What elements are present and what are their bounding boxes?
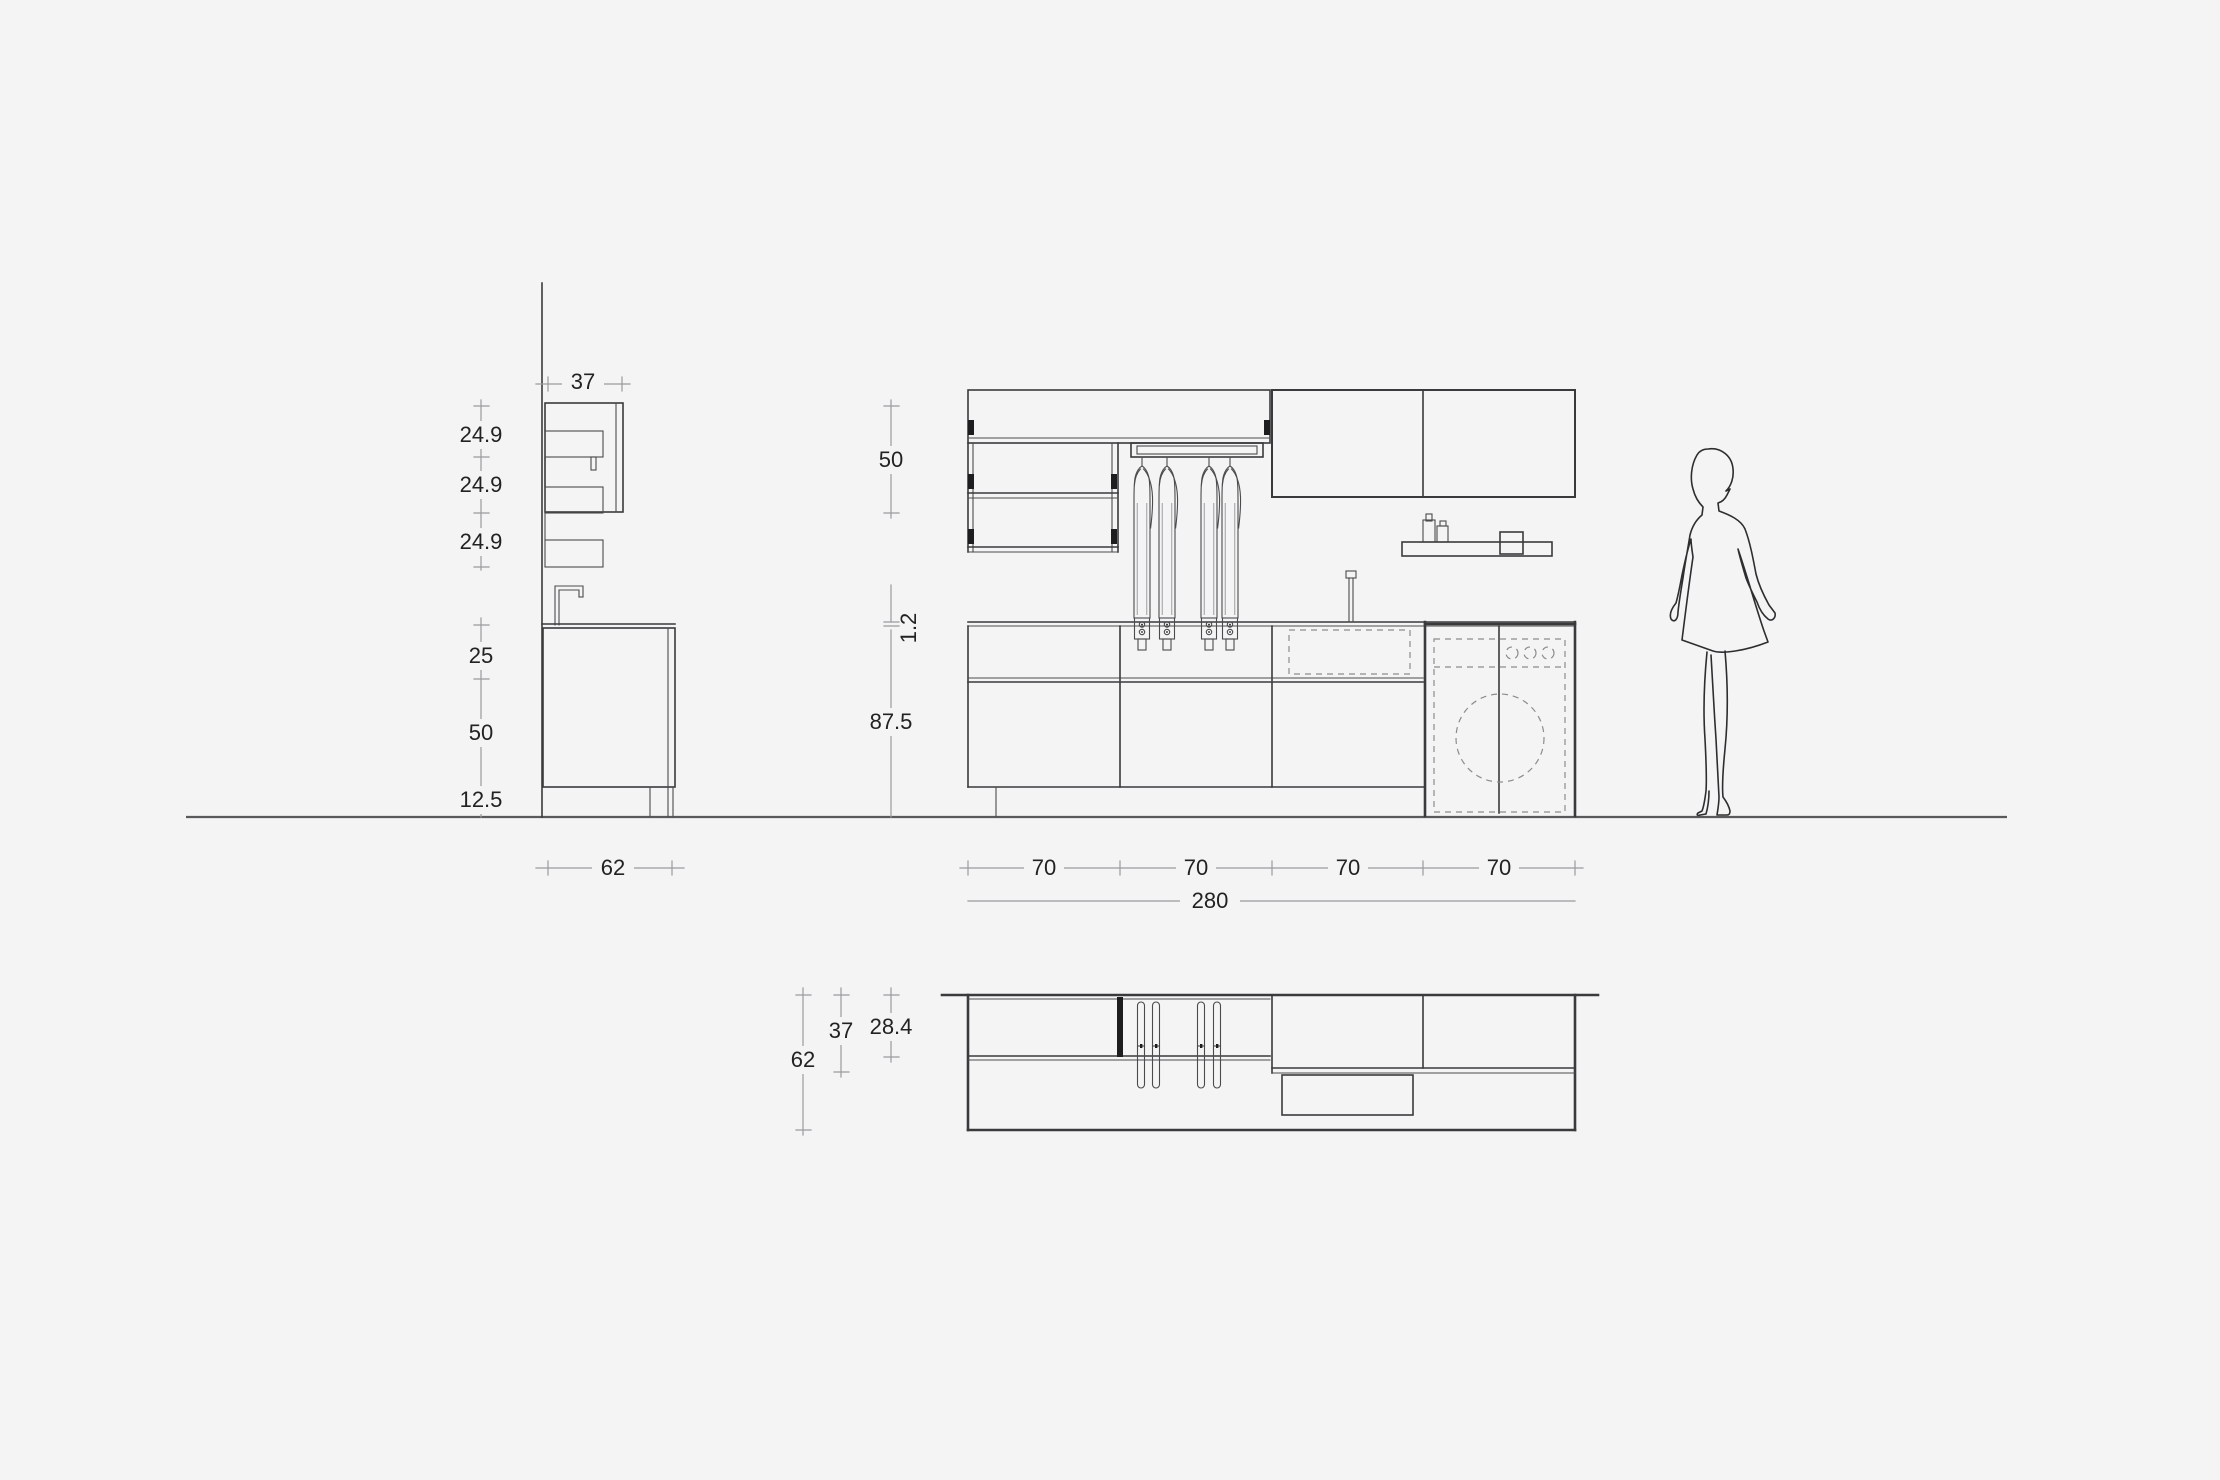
dim-side-base-chain: 25 50 12.5 [453,618,509,817]
svg-text:62: 62 [601,855,625,880]
human-figure [1670,449,1775,816]
plan-view: 62 37 28.4 [782,988,1598,1135]
garment-hanger [1222,457,1241,650]
bracket-mark-icon [1111,529,1117,544]
svg-text:25: 25 [469,643,493,668]
side-shelf-2 [545,487,603,513]
svg-text:24.9: 24.9 [460,422,503,447]
shelf-hook [591,457,596,470]
washer-knob-icon [1506,647,1518,659]
side-shelf-1 [545,431,603,457]
svg-text:37: 37 [829,1018,853,1043]
plan-garments [1138,1002,1221,1088]
svg-text:280: 280 [1192,888,1229,913]
shelf-board [1402,542,1552,556]
dim-front-modules: 70 70 70 70 [960,853,1583,881]
garment-hanger [1134,457,1153,650]
dim-counter-thickness: 1.2 [884,585,921,643]
dim-plan-total-depth: 62 [782,988,824,1135]
side-wall-cabinet [545,403,623,567]
dim-plan-shelf-depth: 28.4 [862,988,920,1062]
plan-divider-mark [1117,997,1123,1057]
dim-counter-height: 87.5 [863,630,919,817]
bottle-icon [1423,520,1435,542]
garment-hanger [1201,457,1220,650]
svg-text:62: 62 [791,1047,815,1072]
sink-outline [1289,630,1410,674]
svg-text:50: 50 [469,720,493,745]
hinge-mark-icon [1264,420,1270,435]
plan-right-wall-cabinet [1272,995,1575,1073]
washing-machine [1425,622,1575,816]
bracket-mark-icon [968,529,974,544]
washer-knob-icon [1542,647,1554,659]
front-elevation: 50 1.2 87.5 70 70 70 [863,390,1583,914]
side-shelf-3 [545,540,603,567]
dim-side-depth: 62 [536,853,684,881]
base-cabinets [968,622,1575,816]
hinge-mark-icon [968,420,974,435]
side-faucet-icon [555,586,583,625]
svg-text:24.9: 24.9 [460,529,503,554]
technical-drawing: 37 24.9 24.9 24.9 25 50 12. [0,0,2220,1480]
box-icon [1500,532,1523,554]
svg-text:50: 50 [879,447,903,472]
plan-sink [1282,1075,1413,1115]
dim-side-shelf-chain: 24.9 24.9 24.9 [453,400,509,570]
hanging-rail [1131,443,1263,457]
svg-text:70: 70 [1184,855,1208,880]
wall-cabinet-right [1272,390,1575,497]
bottle-icon [1437,526,1448,542]
svg-text:1.2: 1.2 [896,613,921,644]
svg-text:12.5: 12.5 [460,787,503,812]
dim-front-wall-cabinet: 50 [871,400,911,518]
washer-knob-icon [1524,647,1536,659]
svg-text:24.9: 24.9 [460,472,503,497]
svg-text:37: 37 [571,369,595,394]
drawing-canvas: 37 24.9 24.9 24.9 25 50 12. [0,0,2220,1480]
open-shelf-unit [968,443,1118,552]
svg-text:87.5: 87.5 [870,709,913,734]
svg-text:70: 70 [1487,855,1511,880]
svg-text:28.4: 28.4 [870,1014,913,1039]
dim-side-top-width: 37 [536,368,630,396]
garment-hanger [1159,457,1178,650]
dim-front-total: 280 [968,886,1575,914]
accessory-shelf [1402,514,1552,556]
bracket-mark-icon [1111,474,1117,489]
svg-text:70: 70 [1336,855,1360,880]
wall-cabinet-left [968,390,1270,443]
washer-drum-icon [1456,694,1544,782]
svg-text:70: 70 [1032,855,1056,880]
plan-left-wall-units [968,997,1270,1060]
front-faucet-icon [1346,571,1356,622]
bracket-mark-icon [968,474,974,489]
side-elevation: 37 24.9 24.9 24.9 25 50 12. [453,283,684,881]
side-base-cabinet [542,624,675,816]
dim-plan-cabinet-depth: 37 [821,988,861,1077]
